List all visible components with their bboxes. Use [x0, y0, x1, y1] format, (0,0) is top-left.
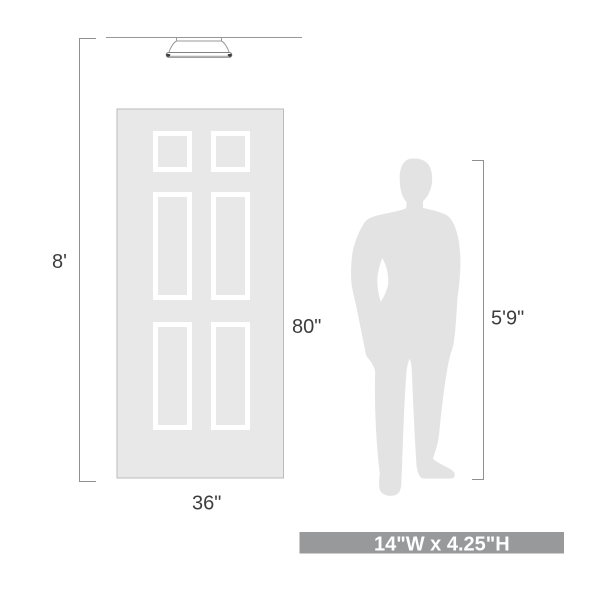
svg-text:8': 8' [52, 251, 67, 273]
svg-text:14"W x 4.25"H: 14"W x 4.25"H [374, 534, 510, 556]
svg-text:5'9": 5'9" [491, 308, 524, 330]
svg-text:36": 36" [192, 493, 221, 515]
svg-text:80": 80" [292, 316, 321, 338]
